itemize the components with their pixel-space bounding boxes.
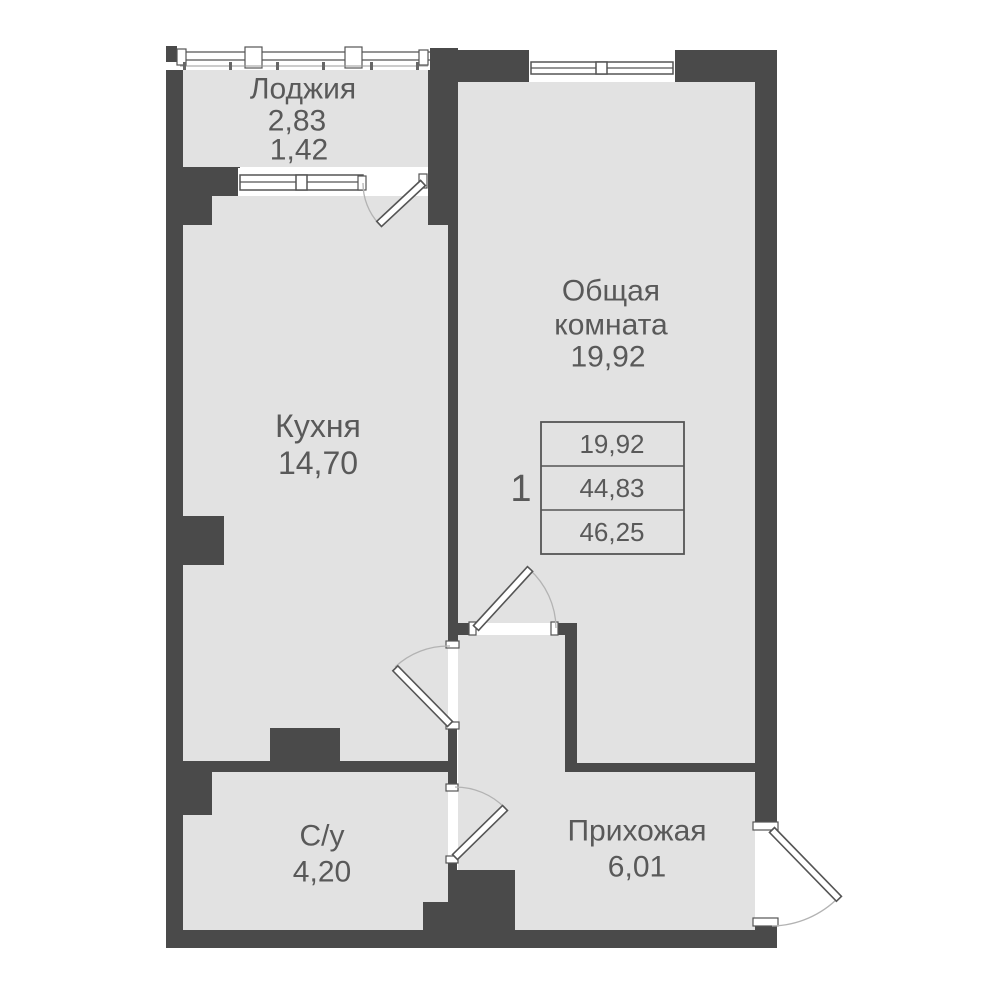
balcony-door-jamb-left [358, 176, 366, 190]
living-door-jamb-right [551, 622, 558, 635]
living-door-opening [475, 623, 552, 635]
glazing-tick [229, 62, 232, 70]
kitchen-door-jamb-top [446, 641, 459, 648]
glazing-post-3 [345, 47, 362, 68]
glazing-tick [322, 62, 325, 70]
entrance-door-arc [772, 897, 839, 926]
floor-plan-page: 1 19,92 44,83 46,25 Лоджия 2,83 1,42 Кух… [0, 0, 1000, 1000]
kitchen-area: 14,70 [278, 445, 358, 481]
wall-right-upper [755, 50, 777, 823]
glazing-tick [183, 62, 186, 70]
glazing-post-4 [419, 50, 428, 65]
hallway-label: Прихожая [567, 815, 706, 848]
rooms-count: 1 [510, 468, 531, 510]
kitchen-label: Кухня [275, 408, 361, 444]
living-window-mullion [596, 62, 607, 74]
glazing-corner-left [166, 46, 177, 62]
living-room-label-line2: комната [554, 309, 668, 342]
living-room-label-line1: Общая [562, 275, 660, 308]
entrance-door-jamb-bottom [753, 918, 778, 926]
wall-top-right-of-window [675, 50, 777, 82]
table-total-area: 46,25 [579, 517, 644, 547]
wall-corridor-living [565, 635, 577, 772]
glazing-post-2 [245, 47, 262, 68]
floor-plan: 1 19,92 44,83 46,25 Лоджия 2,83 1,42 Кух… [0, 0, 1000, 1000]
table-area-without-loggia: 44,83 [579, 473, 644, 503]
wall-top-left-of-window [455, 50, 529, 82]
bathroom-door-opening [448, 790, 457, 858]
entrance-door [753, 822, 841, 926]
wall-right-lower [755, 925, 777, 948]
wall-left [166, 48, 183, 948]
wall-kitchen-living-divider [448, 225, 458, 642]
wall-loggia-kitchen-left [183, 167, 240, 196]
glazing-tick [416, 62, 419, 70]
entrance-door-leaf [769, 828, 841, 902]
kitchen-door-opening [448, 647, 458, 723]
living-room-window [529, 50, 675, 82]
wall-between-doors [448, 723, 457, 790]
bathroom-top-left-notch [183, 772, 212, 815]
duct-shaft-block [448, 870, 515, 933]
hallway-area: 6,01 [608, 851, 666, 884]
wall-kitchen-bathroom [183, 761, 457, 772]
bathroom-area: 4,20 [293, 856, 351, 889]
kitchen-window-mullion [296, 175, 307, 190]
wall-hallway-living [565, 763, 755, 772]
loggia-label: Лоджия [250, 73, 356, 106]
bathroom-label: С/у [300, 820, 345, 853]
living-room-area: 19,92 [570, 341, 645, 374]
kitchen-bottom-pier [270, 728, 340, 761]
kitchen-top-left-notch [183, 196, 212, 225]
bathroom-corner-notch [423, 902, 448, 933]
glazing-tick [276, 62, 279, 70]
kitchen-left-pier [183, 516, 224, 565]
table-living-area: 19,92 [579, 429, 644, 459]
glazing-tick [370, 62, 373, 70]
loggia-area-coeff: 1,42 [270, 134, 328, 167]
wall-living-door-stub-left [448, 623, 470, 635]
loggia-glazing-window [166, 46, 430, 70]
wall-block-loggia-living [428, 48, 458, 225]
entrance-door-opening [755, 830, 777, 920]
